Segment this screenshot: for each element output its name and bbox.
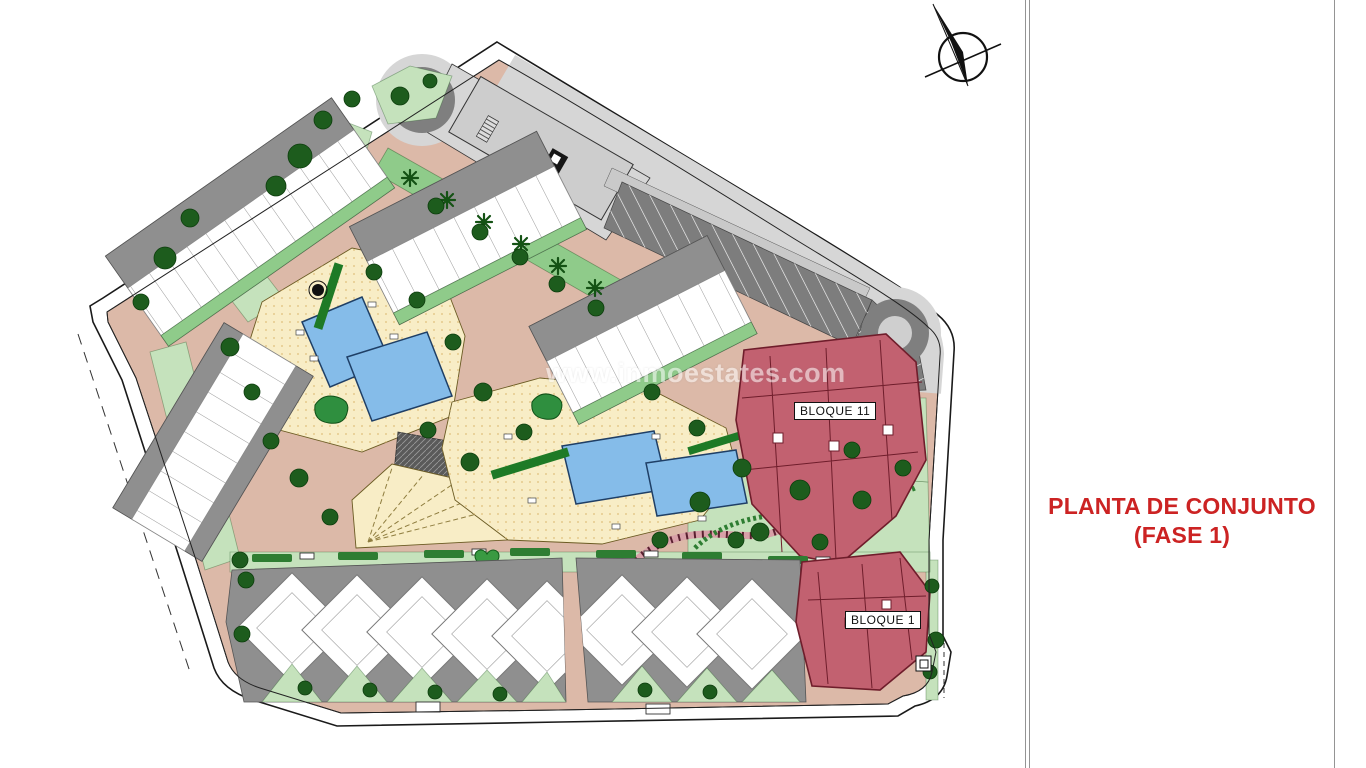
bloque-1-label: BLOQUE 1 [845, 611, 921, 629]
watermark-text: www.inmoestates.com [546, 358, 826, 389]
panel-divider-line [1025, 0, 1026, 768]
plan-title-line2: (FASE 1) [1032, 521, 1332, 550]
site-plan-page: www.inmoestates.com BLOQUE 11 BLOQUE 1 P… [0, 0, 1366, 768]
plan-title: PLANTA DE CONJUNTO (FASE 1) [1032, 492, 1332, 550]
housing-cluster-southwest [226, 558, 602, 702]
panel-divider-line [1029, 0, 1030, 768]
panel-right-line [1334, 0, 1335, 768]
site-plan-drawing [0, 0, 1020, 768]
north-arrow-icon [925, 4, 1001, 86]
bloque-11-label: BLOQUE 11 [794, 402, 876, 420]
plan-title-line1: PLANTA DE CONJUNTO [1032, 492, 1332, 521]
